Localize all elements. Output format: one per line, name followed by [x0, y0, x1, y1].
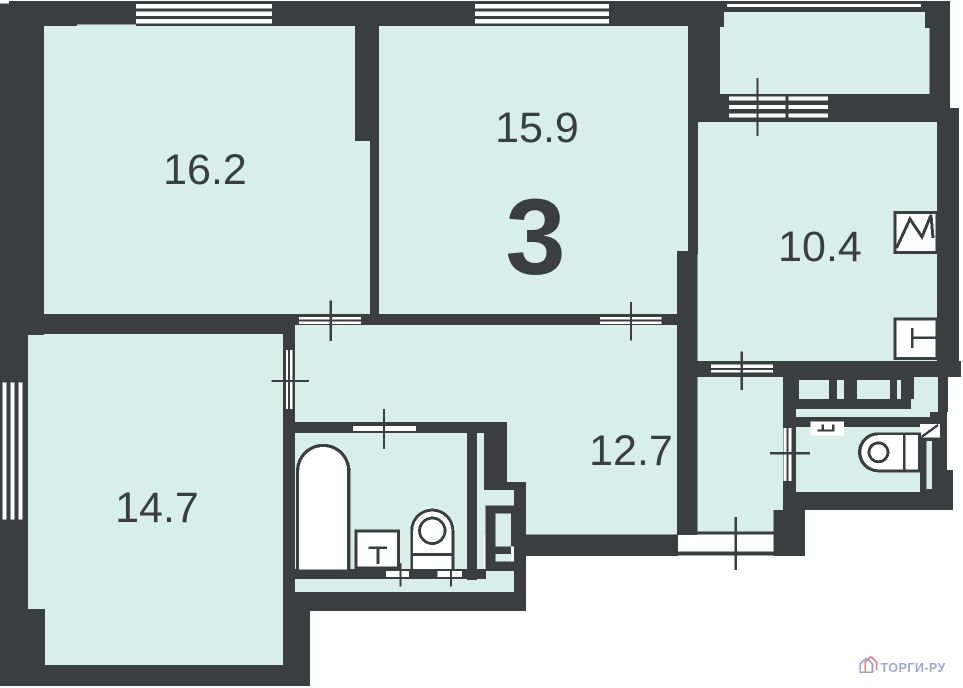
svg-text:16.2: 16.2 [163, 146, 247, 194]
svg-text:14.7: 14.7 [115, 484, 199, 532]
svg-text:15.9: 15.9 [495, 104, 579, 152]
svg-text:12.7: 12.7 [589, 427, 673, 475]
svg-text:10.4: 10.4 [778, 223, 862, 271]
svg-text:3: 3 [505, 176, 565, 297]
svg-text:ТОРГИ-РУ: ТОРГИ-РУ [881, 661, 946, 675]
